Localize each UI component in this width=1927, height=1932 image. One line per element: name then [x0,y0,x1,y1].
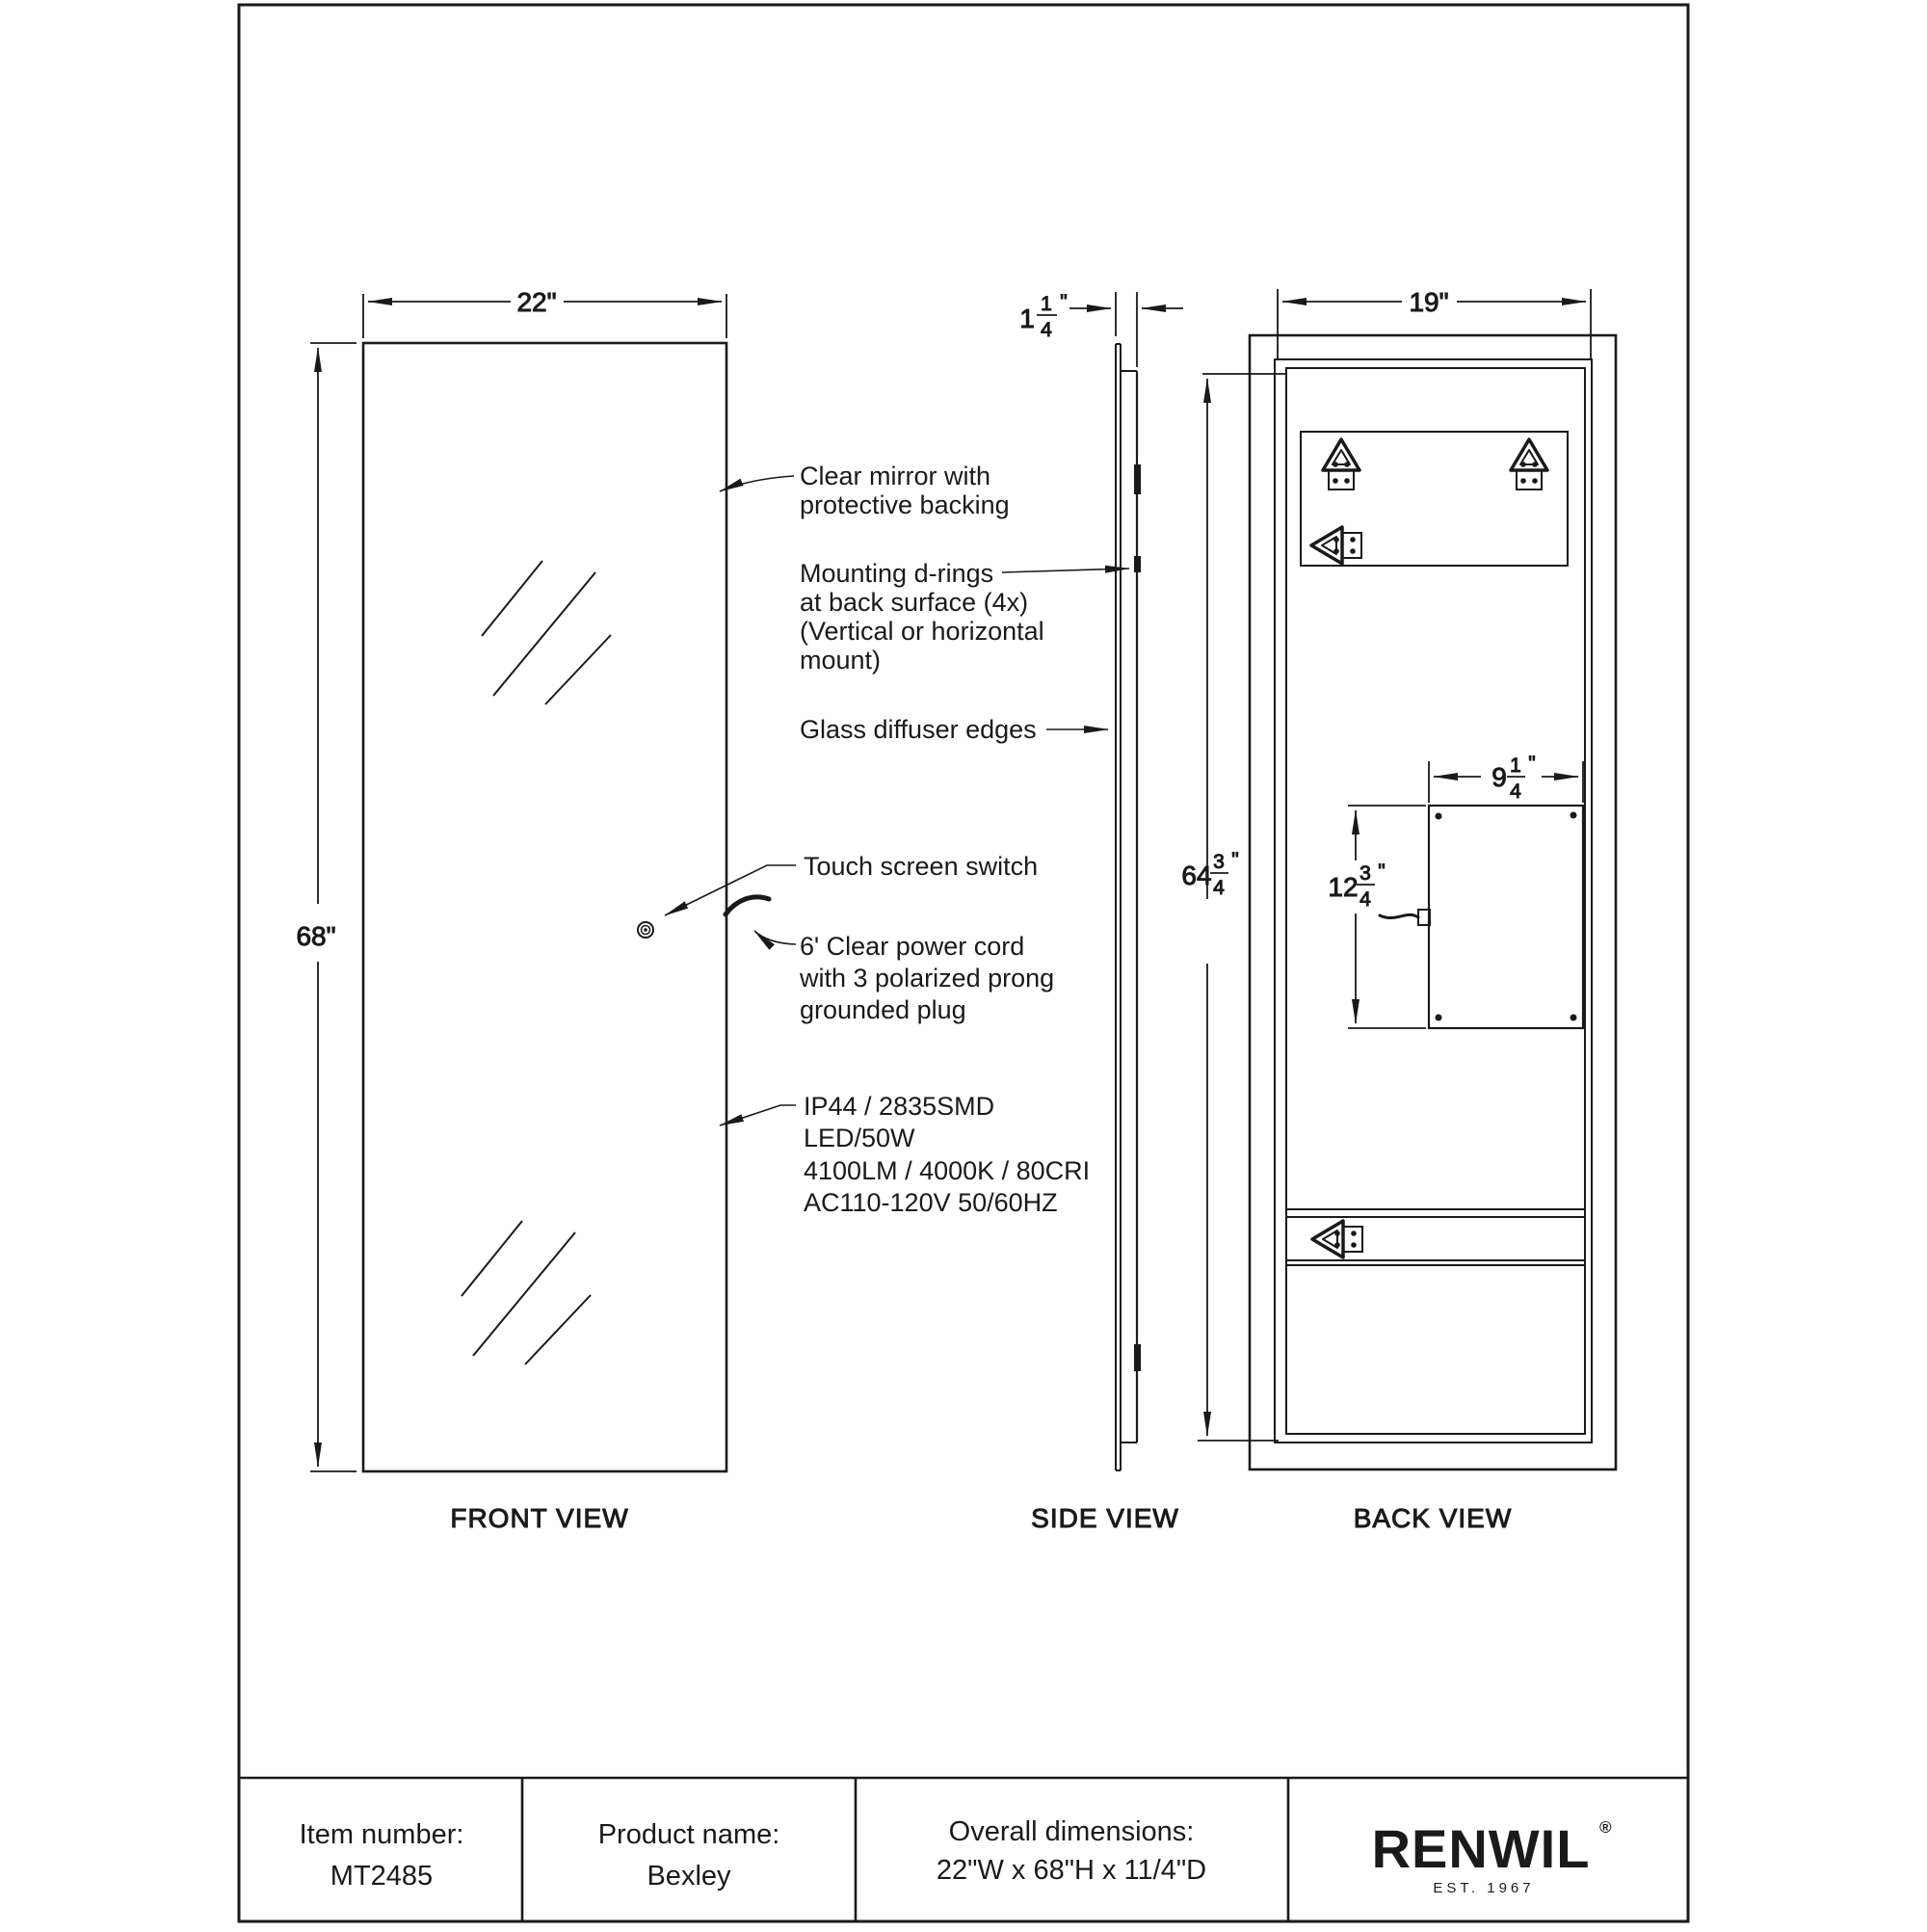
svg-text:protective backing: protective backing [800,490,1010,519]
side-view-label: SIDE VIEW [1031,1503,1179,1533]
leader-clear-mirror [720,476,794,491]
leader-power-cord [754,931,796,944]
title-block-product-cell: Product name: Bexley [598,1819,780,1892]
svg-text:4: 4 [1510,781,1521,803]
jbox-height-dim-label: 12 3 4 " [1328,860,1385,911]
svg-text:4: 4 [1213,877,1225,899]
svg-text:grounded plug: grounded plug [800,995,966,1024]
svg-text:4100LM / 4000K / 80CRI: 4100LM / 4000K / 80CRI [804,1156,1090,1185]
brand-established: EST. 1967 [1433,1880,1534,1896]
back-cord-icon [1380,914,1418,917]
svg-text:3: 3 [1359,862,1371,885]
annotation-power-cord: 6' Clear power cord with 3 polarized pro… [799,932,1054,1024]
svg-text:IP44 / 2835SMD: IP44 / 2835SMD [804,1092,994,1121]
annotation-mounting-drings: Mounting d-rings at back surface (4x) (V… [800,559,1044,675]
item-number-value: MT2485 [330,1861,433,1892]
svg-text:6' Clear power cord: 6' Clear power cord [800,932,1024,961]
spec-sheet-page: 22" 68" FRONT VIEW 1 1 [0,0,1927,1927]
title-block-dimensions-cell: Overall dimensions: 22"W x 68"H x 11/4"D [937,1816,1206,1886]
annotations: Clear mirror with protective backing Mou… [665,462,1129,1217]
side-depth-dim-label: 1 1 4 " [1019,291,1068,341]
svg-text:1: 1 [1041,293,1052,315]
svg-text:64: 64 [1181,860,1211,890]
front-height-dim-label: 68" [296,921,335,951]
annotation-clear-mirror: Clear mirror with protective backing [800,462,1010,519]
leader-led-specs [720,1105,796,1125]
product-name-value: Bexley [647,1861,731,1892]
jbox-width-dim-label: 9 1 4 " [1491,753,1536,803]
svg-text:": " [1378,860,1385,883]
title-block: Item number: MT2485 Product name: Bexley… [239,1778,1688,1921]
d-ring-icon [1312,1221,1362,1257]
back-view-label: BACK VIEW [1354,1503,1513,1533]
front-width-dim-label: 22" [516,287,556,317]
svg-text:1: 1 [1019,304,1035,333]
glass-hatch-lower [462,1221,591,1364]
d-ring-side-profile [1134,1344,1141,1371]
item-number-label: Item number: [300,1819,464,1850]
svg-text:at back surface (4x): at back surface (4x) [800,588,1028,617]
svg-text:4: 4 [1041,319,1052,341]
annotation-glass-diffuser: Glass diffuser edges [800,715,1037,744]
title-block-item-cell: Item number: MT2485 [300,1819,464,1892]
front-view: 22" 68" FRONT VIEW [296,287,769,1533]
svg-text:3: 3 [1213,851,1225,873]
annotation-led-specs: IP44 / 2835SMD LED/50W 4100LM / 4000K / … [804,1092,1090,1217]
back-height-dim-label: 64 3 4 " [1181,849,1238,899]
svg-text:": " [1231,849,1238,871]
svg-text:mount): mount) [800,646,881,675]
product-name-label: Product name: [598,1819,780,1850]
svg-text:12: 12 [1328,872,1358,902]
svg-text:AC110-120V 50/60HZ: AC110-120V 50/60HZ [804,1188,1058,1217]
side-view: 1 1 4 " SIDE VIEW [1019,291,1183,1533]
svg-text:9: 9 [1491,762,1507,792]
d-ring-icon [1511,439,1547,490]
svg-text:": " [1060,291,1067,313]
power-cord-icon [726,897,769,914]
back-height-dimension [1198,374,1285,1441]
mirror-front-outline [363,343,726,1471]
lower-hardware-strip [1286,1209,1585,1265]
back-mid-frame [1275,359,1592,1442]
leader-mounting-drings [1002,569,1129,572]
svg-text:with 3 polarized prong: with 3 polarized prong [799,964,1054,992]
annotation-touch-switch: Touch screen switch [804,852,1038,881]
svg-text:(Vertical or horizontal: (Vertical or horizontal [800,617,1044,646]
d-ring-icon [1311,527,1361,564]
svg-text:1: 1 [1510,754,1521,777]
technical-drawing: 22" 68" FRONT VIEW 1 1 [0,0,1927,1927]
back-view: 19" 64 3 4 " 9 1 4 " [1181,287,1616,1533]
back-width-dim-label: 19" [1409,287,1448,317]
brand-logo: RENWIL ® EST. 1967 [1372,1818,1612,1896]
glass-hatch-upper [482,561,611,704]
overall-dimensions-label: Overall dimensions: [949,1816,1195,1847]
front-height-dimension [310,343,356,1471]
d-ring-icon [1323,439,1359,490]
svg-text:LED/50W: LED/50W [804,1124,915,1152]
back-outer-frame [1250,335,1616,1469]
svg-text:Clear mirror with: Clear mirror with [800,462,990,490]
d-ring-side-profile [1134,556,1141,572]
overall-dimensions-value: 22"W x 68"H x 11/4"D [937,1855,1206,1886]
brand-wordmark: RENWIL [1372,1818,1591,1879]
touch-switch-icon [638,922,653,938]
svg-text:": " [1528,753,1535,775]
front-view-label: FRONT VIEW [450,1503,628,1533]
svg-text:4: 4 [1359,888,1371,911]
svg-text:Mounting d-rings: Mounting d-rings [800,559,993,588]
junction-box [1380,806,1583,1028]
registered-mark-icon: ® [1599,1818,1612,1837]
side-depth-dimension [1069,292,1183,367]
d-ring-side-profile [1134,464,1141,494]
